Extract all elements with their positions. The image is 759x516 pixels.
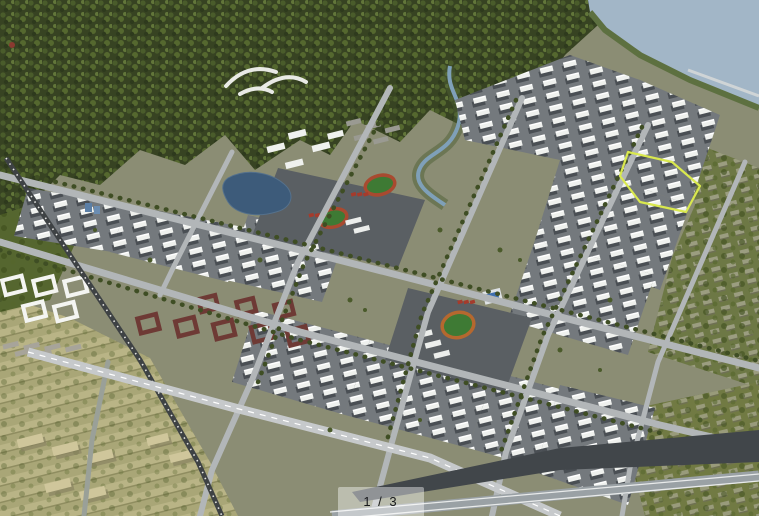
blue-glass-tower <box>85 203 92 212</box>
pagination-text: 1 / 3 <box>363 494 398 509</box>
pagination-badge: 1 / 3 <box>338 487 424 516</box>
aerial-scene <box>0 0 759 516</box>
aerial-render-viewer: 1 / 3 <box>0 0 759 516</box>
red-roof-hut <box>9 42 15 48</box>
blue-glass-tower <box>94 206 100 214</box>
